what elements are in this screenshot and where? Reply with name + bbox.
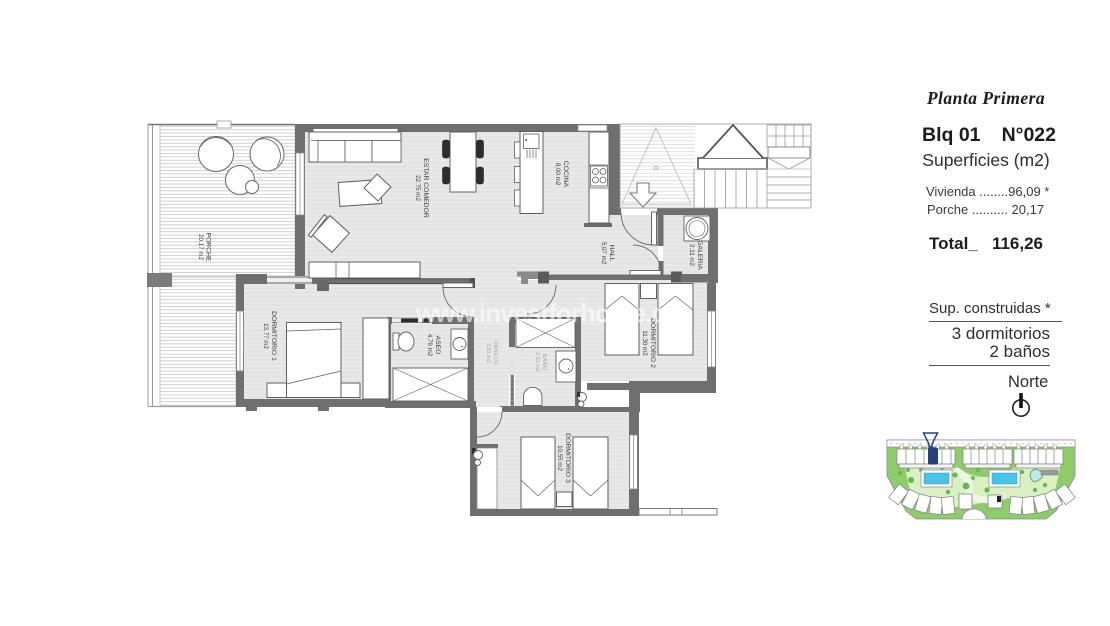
svg-text:www.investforhome.c: www.investforhome.c [415, 298, 666, 328]
svg-text:DORMITORIO 3: DORMITORIO 3 [564, 433, 571, 483]
svg-text:3,61 m2: 3,61 m2 [485, 343, 491, 362]
svg-text:ESTAR COMEDOR: ESTAR COMEDOR [422, 158, 429, 218]
svg-text:COCINA: COCINA [562, 161, 569, 188]
svg-text:HALL: HALL [608, 244, 615, 261]
svg-text:4,79 m2: 4,79 m2 [426, 334, 433, 357]
svg-text:22,75 m2: 22,75 m2 [414, 175, 421, 201]
svg-text:2,11 m2: 2,11 m2 [688, 244, 695, 266]
svg-text:10,55 m2: 10,55 m2 [556, 445, 563, 471]
svg-text:BAÑO: BAÑO [541, 354, 548, 371]
svg-text:PASILLO: PASILLO [492, 341, 498, 365]
svg-text:13,77 m2: 13,77 m2 [262, 323, 269, 349]
svg-text:PORCHE: PORCHE [205, 232, 212, 262]
svg-text:2,61 m2: 2,61 m2 [534, 352, 540, 371]
svg-text:GALERIA: GALERIA [696, 240, 703, 270]
svg-text:20,17 m2: 20,17 m2 [197, 234, 204, 260]
svg-text:DORMITORIO 1: DORMITORIO 1 [270, 311, 277, 361]
svg-text:5,07 m2: 5,07 m2 [600, 242, 607, 265]
svg-text:11,30 m2: 11,30 m2 [641, 330, 648, 356]
svg-text:ASEO: ASEO [434, 336, 441, 355]
svg-text:8,00 m2: 8,00 m2 [554, 163, 561, 186]
